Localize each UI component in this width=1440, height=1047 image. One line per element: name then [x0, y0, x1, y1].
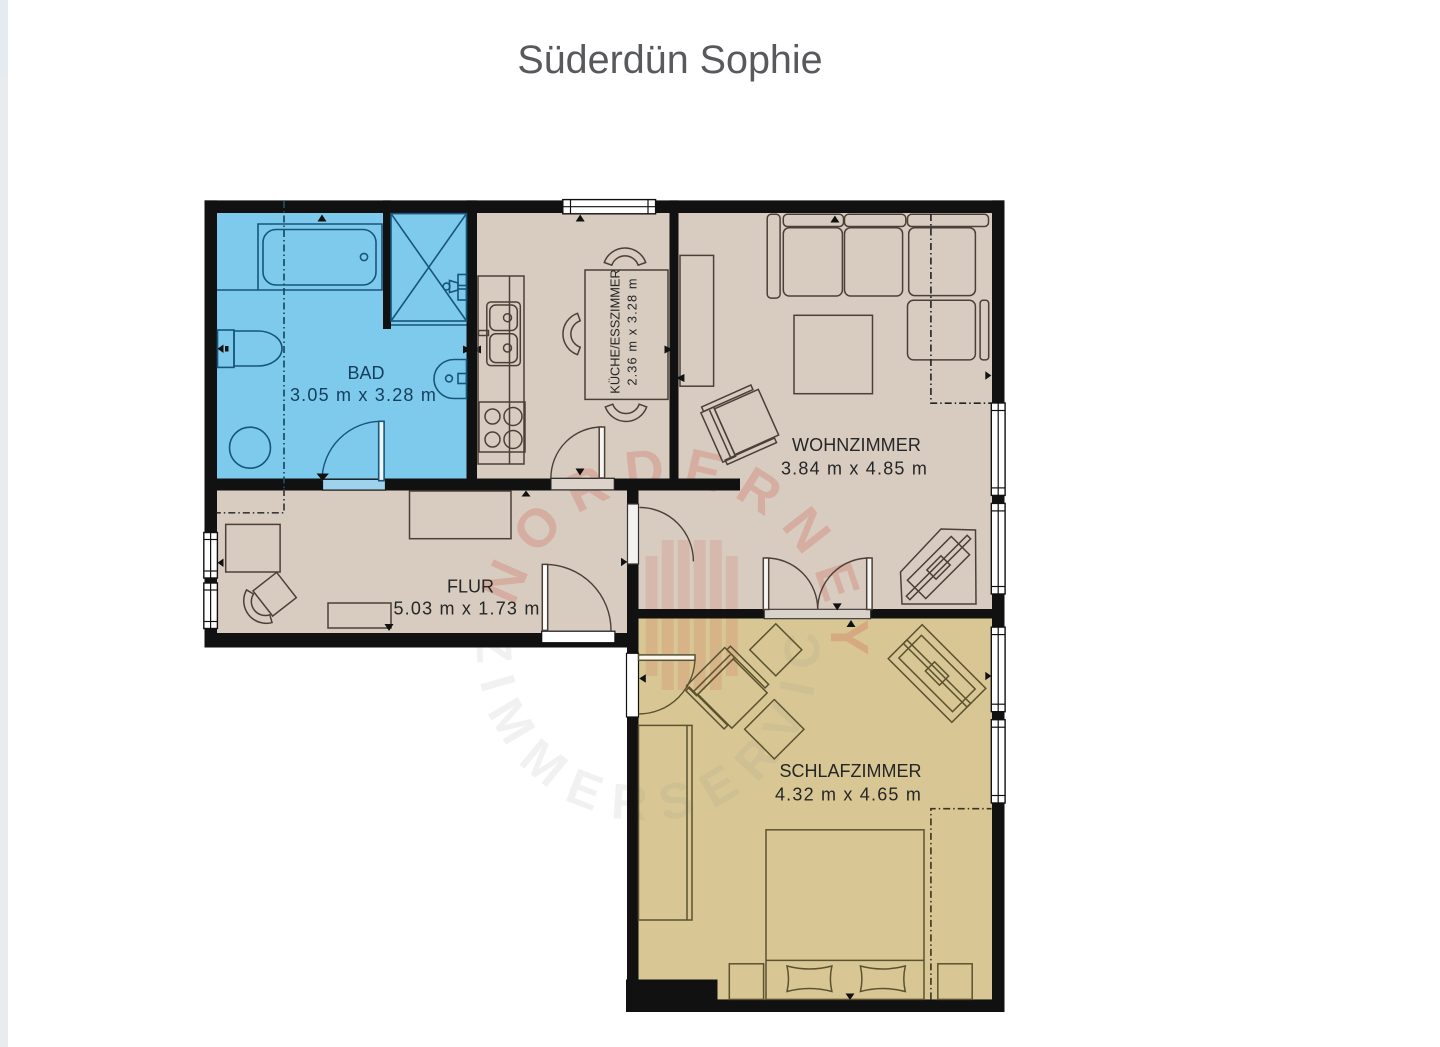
svg-text:3.05 m x 3.28 m: 3.05 m x 3.28 m [290, 385, 437, 405]
svg-text:2.36 m x 3.28 m: 2.36 m x 3.28 m [625, 277, 640, 385]
svg-text:Süderdün Sophie: Süderdün Sophie [517, 38, 822, 82]
svg-text:SCHLAFZIMMER: SCHLAFZIMMER [779, 761, 921, 781]
svg-text:5.03 m x 1.73 m: 5.03 m x 1.73 m [393, 599, 540, 619]
svg-text:4.32 m x 4.65 m: 4.32 m x 4.65 m [775, 785, 922, 805]
svg-text:WOHNZIMMER: WOHNZIMMER [792, 435, 921, 455]
svg-text:KÜCHE/ESSZIMMER: KÜCHE/ESSZIMMER [608, 269, 623, 393]
svg-text:BAD: BAD [347, 363, 384, 383]
svg-text:3.84 m x 4.85 m: 3.84 m x 4.85 m [781, 459, 928, 479]
svg-text:FLUR: FLUR [447, 577, 494, 597]
